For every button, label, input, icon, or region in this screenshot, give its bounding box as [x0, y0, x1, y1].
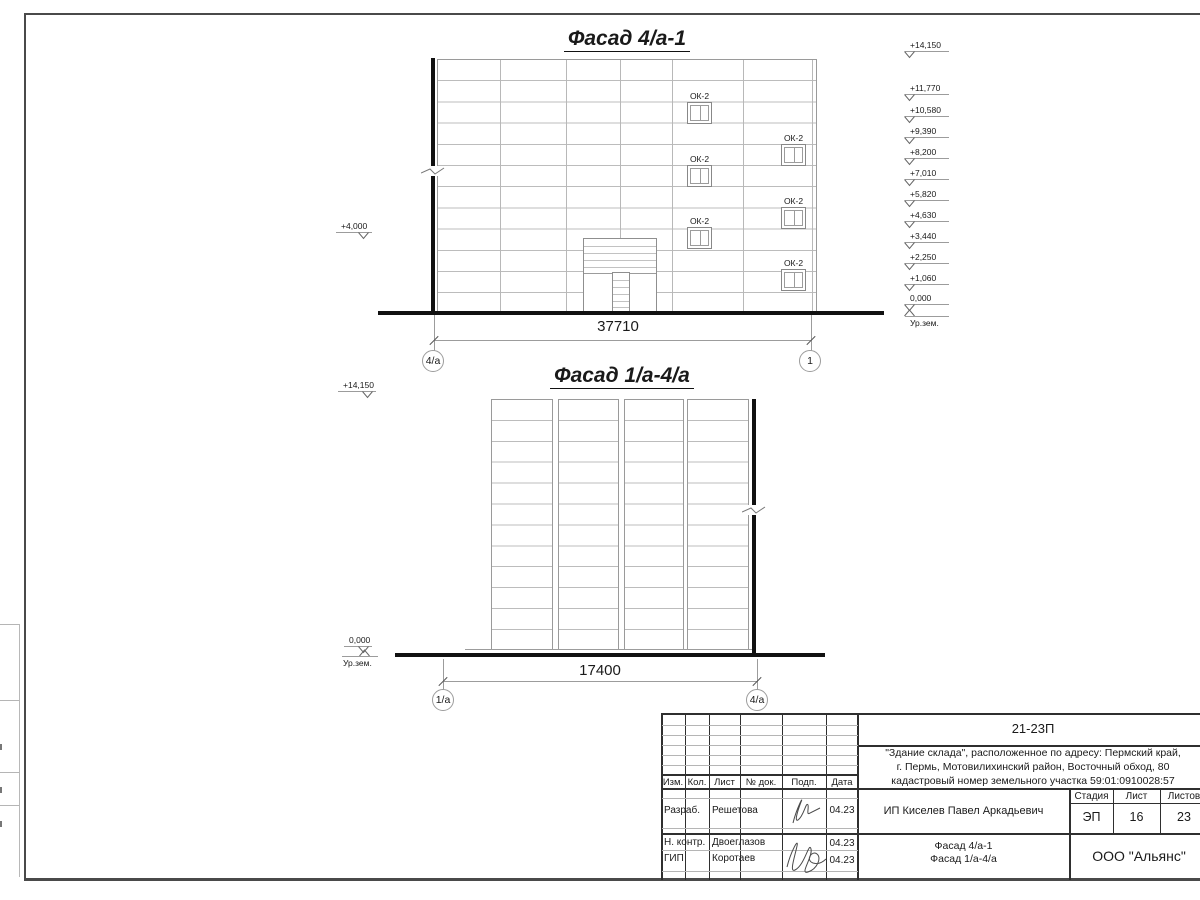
- window-frame: [690, 105, 709, 121]
- break-mark-icon: [742, 504, 766, 516]
- facade2-dimension-text: 17400: [500, 662, 700, 679]
- facade2-bay: [558, 399, 619, 650]
- break-mark-icon: [421, 165, 445, 177]
- facade2-bay: [624, 399, 684, 650]
- axis-bubble: 1: [799, 350, 821, 372]
- ground-label: Ур.зем.: [910, 318, 939, 328]
- titleblock-row-line: [662, 755, 858, 756]
- project-description: "Здание склада", расположенное по адресу…: [860, 747, 1200, 788]
- elevation-mark: 0,000: [905, 292, 949, 305]
- project-line: кадастровый номер земельного участка 59:…: [860, 775, 1200, 789]
- elevation-mark: +4,630: [905, 209, 949, 222]
- sheet-number: 16: [1113, 810, 1160, 824]
- titleblock-row-line: [662, 765, 858, 766]
- gate-panel-line: [584, 260, 656, 261]
- window-frame: [690, 230, 709, 246]
- row-date: 04.23: [826, 838, 858, 849]
- titleblock-row-line: [662, 735, 858, 736]
- margin-strip-divider: [0, 805, 19, 806]
- sheets-label: Листов: [1160, 791, 1200, 802]
- stage-value: ЭП: [1070, 810, 1113, 824]
- titleblock-divider: [661, 774, 858, 776]
- margin-text-fragment: [0, 821, 2, 827]
- facade2-title: Фасад 1/а-4/а: [462, 364, 782, 388]
- titleblock-border: [661, 713, 663, 880]
- row-role: Разраб.: [664, 805, 700, 816]
- titleblock-row-line: [662, 828, 858, 829]
- elevation-mark: +2,250: [905, 251, 949, 264]
- wicket-line: [613, 301, 629, 302]
- doc-number: 21-23П: [858, 721, 1200, 736]
- signature-razrab-icon: [785, 791, 825, 831]
- titleblock-divider: [661, 833, 1200, 835]
- elevation-mark-icon: [904, 137, 915, 145]
- extension-line: [434, 315, 435, 351]
- elevation-mark-icon: [904, 200, 915, 208]
- row-name: Решетова: [712, 805, 758, 816]
- margin-text-fragment: [0, 744, 2, 750]
- gate-panel-line: [584, 246, 656, 247]
- facade1-ground-line: [378, 311, 884, 315]
- drawing-sheet: { "facade1": { "title": "Фасад 4/а-1", "…: [0, 0, 1200, 900]
- titleblock-row-line: [662, 871, 858, 872]
- company-name: ООО "Альянс": [1070, 848, 1200, 864]
- panel-joint-line: [566, 60, 567, 312]
- elevation-mark: +8,200: [905, 146, 949, 159]
- wicket-door: [612, 272, 630, 312]
- facade2-bay: [491, 399, 553, 650]
- gate: [583, 238, 657, 313]
- elevation-mark: +9,390: [905, 125, 949, 138]
- facade1-corner-line: [431, 58, 435, 313]
- wicket-line: [613, 287, 629, 288]
- elevation-mark-icon: [904, 284, 915, 292]
- row-name: Двоеглазов: [712, 837, 765, 848]
- facade2-plinth-line: [465, 649, 755, 650]
- row-date: 04.23: [826, 855, 858, 866]
- facade1-title: Фасад 4/а-1: [437, 27, 817, 51]
- facade2-corner-line: [752, 399, 756, 656]
- margin-strip-line: [19, 624, 20, 877]
- window-ok2: [687, 227, 712, 249]
- drawing-title-line: Фасад 4/а-1: [858, 840, 1069, 853]
- titleblock-divider: [1069, 803, 1200, 804]
- titleblock-divider: [685, 713, 686, 880]
- window-tag: ОК-2: [684, 216, 715, 226]
- ground-mark-shelf: [342, 656, 378, 657]
- col-header-izm: Изм.: [661, 777, 685, 788]
- axis-bubble: 4/а: [746, 689, 768, 711]
- titleblock-row-line: [662, 798, 858, 799]
- elevation-mark-icon: [904, 51, 915, 59]
- window-frame: [784, 210, 803, 226]
- facade2-bay: [687, 399, 749, 650]
- project-line: "Здание склада", расположенное по адресу…: [860, 747, 1200, 761]
- elevation-mark-icon: [904, 158, 915, 166]
- dimension-line: [434, 340, 811, 341]
- gate-panel-line: [584, 253, 656, 254]
- drawing-titles: Фасад 4/а-1 Фасад 1/а-4/а: [858, 840, 1069, 866]
- sheet-label: Лист: [1113, 791, 1160, 802]
- window-tag: ОК-2: [684, 154, 715, 164]
- window-frame: [690, 168, 709, 184]
- window-ok2: [687, 102, 712, 124]
- col-header-list: Лист: [709, 777, 740, 788]
- client-name: ИП Киселев Павел Аркадьевич: [858, 805, 1069, 817]
- drawing-title-line: Фасад 1/а-4/а: [858, 853, 1069, 866]
- elevation-mark: +7,010: [905, 167, 949, 180]
- axis-bubble: 1/а: [432, 689, 454, 711]
- frame-border-left: [24, 13, 26, 880]
- dimension-line: [443, 681, 757, 682]
- elevation-mark-icon: [362, 391, 373, 399]
- elevation-mark: +14,150: [905, 39, 949, 52]
- titleblock-border: [661, 713, 1200, 715]
- window-frame: [784, 147, 803, 163]
- facade1-dimension-text: 37710: [518, 318, 718, 335]
- elevation-mark: +11,770: [905, 82, 949, 95]
- panel-joint-line: [812, 60, 813, 312]
- elevation-mark-icon: [904, 94, 915, 102]
- window-tag: ОК-2: [684, 91, 715, 101]
- window-ok2: [781, 144, 806, 166]
- elevation-mark: +4,000: [336, 220, 372, 233]
- extension-line: [811, 315, 812, 351]
- window-ok2: [687, 165, 712, 187]
- signature-gip-icon: [782, 833, 828, 879]
- window-ok2: [781, 269, 806, 291]
- facade2-ground-line: [395, 653, 825, 657]
- row-name: Коротаев: [712, 853, 755, 864]
- elevation-mark-icon: [904, 179, 915, 187]
- elevation-mark-icon: [904, 263, 915, 271]
- window-tag: ОК-2: [778, 196, 809, 206]
- wicket-line: [613, 294, 629, 295]
- ground-mark-shelf: [905, 316, 949, 317]
- col-header-doc: № док.: [740, 777, 782, 788]
- margin-strip-divider: [0, 624, 19, 625]
- margin-strip-divider: [0, 700, 19, 701]
- titleblock-divider: [709, 713, 710, 880]
- elevation-mark: +3,440: [905, 230, 949, 243]
- axis-bubble: 4/а: [422, 350, 444, 372]
- sheets-total: 23: [1160, 810, 1200, 824]
- margin-text-fragment: [0, 787, 2, 793]
- elevation-mark: +14,150: [338, 379, 376, 392]
- row-role: ГИП: [664, 853, 684, 864]
- extension-line: [443, 659, 444, 692]
- panel-joint-line: [500, 60, 501, 312]
- elevation-mark: +10,580: [905, 104, 949, 117]
- titleblock-row-line: [662, 725, 858, 726]
- window-frame: [784, 272, 803, 288]
- elevation-mark-icon: [358, 232, 369, 240]
- elevation-mark: 0,000: [344, 634, 372, 647]
- row-role: Н. контр.: [664, 837, 705, 848]
- ground-label: Ур.зем.: [343, 658, 372, 668]
- extension-line: [757, 659, 758, 692]
- elevation-mark-icon: [904, 116, 915, 124]
- elevation-mark-icon: [904, 242, 915, 250]
- window-ok2: [781, 207, 806, 229]
- window-tag: ОК-2: [778, 133, 809, 143]
- titleblock-row-line: [662, 850, 858, 851]
- wicket-line: [613, 307, 629, 308]
- window-tag: ОК-2: [778, 258, 809, 268]
- stage-label: Стадия: [1070, 791, 1113, 802]
- gate-panel-line: [584, 267, 656, 268]
- elevation-mark: +1,060: [905, 272, 949, 285]
- margin-strip-divider: [0, 772, 19, 773]
- elevation-mark: +5,820: [905, 188, 949, 201]
- col-header-kol: Кол.: [685, 777, 709, 788]
- col-header-data: Дата: [826, 777, 858, 788]
- project-line: г. Пермь, Мотовилихинский район, Восточн…: [860, 761, 1200, 775]
- frame-border-top: [24, 13, 1200, 15]
- elevation-mark-icon: [904, 221, 915, 229]
- row-date: 04.23: [826, 805, 858, 816]
- col-header-podp: Подп.: [782, 777, 826, 788]
- titleblock-row-line: [662, 745, 858, 746]
- panel-joint-line: [672, 60, 673, 312]
- wicket-line: [613, 280, 629, 281]
- panel-joint-line: [743, 60, 744, 312]
- frame-border-bottom: [24, 878, 1200, 881]
